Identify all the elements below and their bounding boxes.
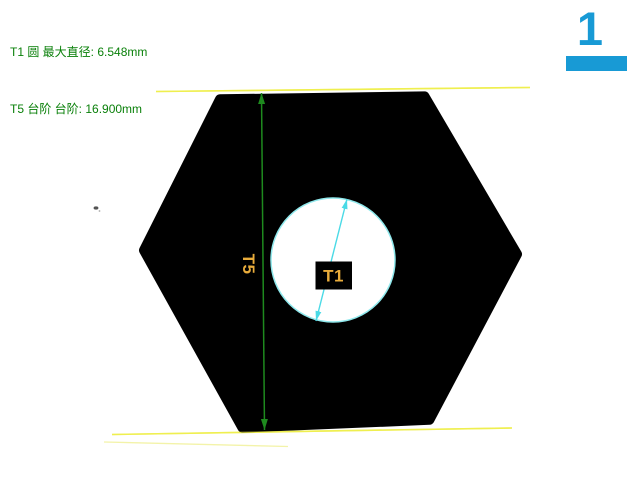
measurement-viewport: T5 T1 T1 圆 最大直径: 6.548mm T5 台阶 台阶: 16.90…: [0, 0, 642, 482]
bottom-secondary-edge-line[interactable]: [104, 442, 288, 447]
part-hole-circle[interactable]: [271, 198, 395, 322]
top-edge-line-overlay: [156, 88, 530, 92]
readout-line-t1: T1 圆 最大直径: 6.548mm: [10, 43, 147, 62]
debris-speck: [94, 206, 101, 212]
t1-label-text: T1: [323, 267, 344, 286]
t5-label-text: T5: [239, 254, 258, 275]
page-indicator-bar: [566, 56, 627, 71]
measurement-readout-panel: T1 圆 最大直径: 6.548mm T5 台阶 台阶: 16.900mm: [10, 5, 147, 157]
t5-feature-label[interactable]: T5: [238, 242, 260, 286]
t1-feature-label[interactable]: T1: [316, 262, 353, 290]
page-number[interactable]: 1: [556, 5, 624, 52]
readout-line-t5: T5 台阶 台阶: 16.900mm: [10, 100, 147, 119]
page-indicator[interactable]: 1: [556, 0, 636, 80]
